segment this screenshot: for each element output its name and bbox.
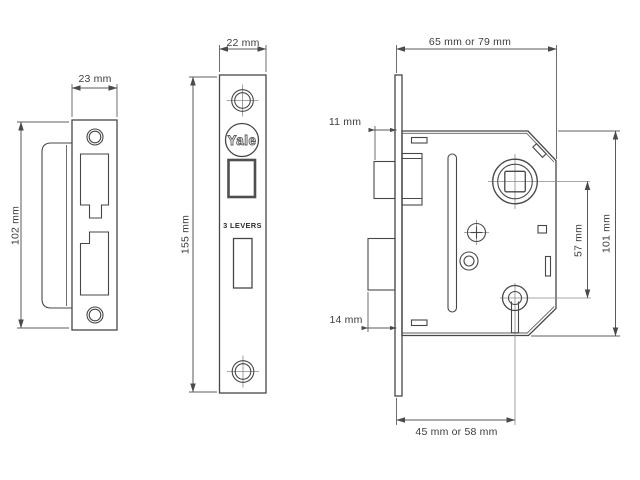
phillips-screw [464,220,489,245]
faceplate-outline [220,75,267,393]
fixing-slot-top [412,138,428,144]
backset-label: 45 mm or 58 mm [397,426,517,439]
lever-pivot [460,252,478,270]
side-slot-vertical [546,257,551,277]
technical-drawing [0,0,640,480]
faceplate-height-label: 155 mm [180,204,193,264]
faceplate-dimensions [189,45,266,392]
lock-body-view [368,75,591,425]
fixing-slot-bottom [412,320,428,326]
guide-slot [448,154,457,312]
latch-cutout [81,154,109,218]
side-slot-square [538,226,547,234]
strike-height-label: 102 mm [10,195,23,255]
case-height-label: 101 mm [601,204,614,264]
case-chamfer [527,307,555,334]
latch-projection-label: 11 mm [315,116,375,129]
deadbolt-projection-label: 14 mm [316,314,376,327]
spindle-hub [488,154,590,209]
deadbolt [368,239,395,291]
case-depth-label: 65 mm or 79 mm [410,36,530,49]
bolt-opening [234,239,253,289]
lock-technical-drawing: 23 mm 102 mm 22 mm 155 mm 65 mm or 79 mm… [0,0,640,480]
faceplate-view [220,75,267,393]
yale-logo-text: Yale [217,133,267,148]
lock-faceplate-edge [395,75,402,396]
chamfer-slot [533,144,546,158]
latch-body [402,154,422,206]
latch-bolt [374,162,395,199]
strike-plate-view [42,120,117,330]
screw-hole [89,309,101,321]
lock-case-outline [402,131,556,336]
keyhole [500,283,591,425]
lever-count-marking: 3 LEVERS [213,221,273,230]
strike-plate-outline [72,120,117,330]
bolt-cutout [81,232,109,295]
strike-keep-box [42,143,72,308]
screw-hole [89,131,101,143]
latch-opening [229,160,256,197]
strike-width-label: 23 mm [60,73,130,86]
faceplate-width-label: 22 mm [208,37,278,50]
spindle-to-keyhole-label: 57 mm [573,210,586,270]
